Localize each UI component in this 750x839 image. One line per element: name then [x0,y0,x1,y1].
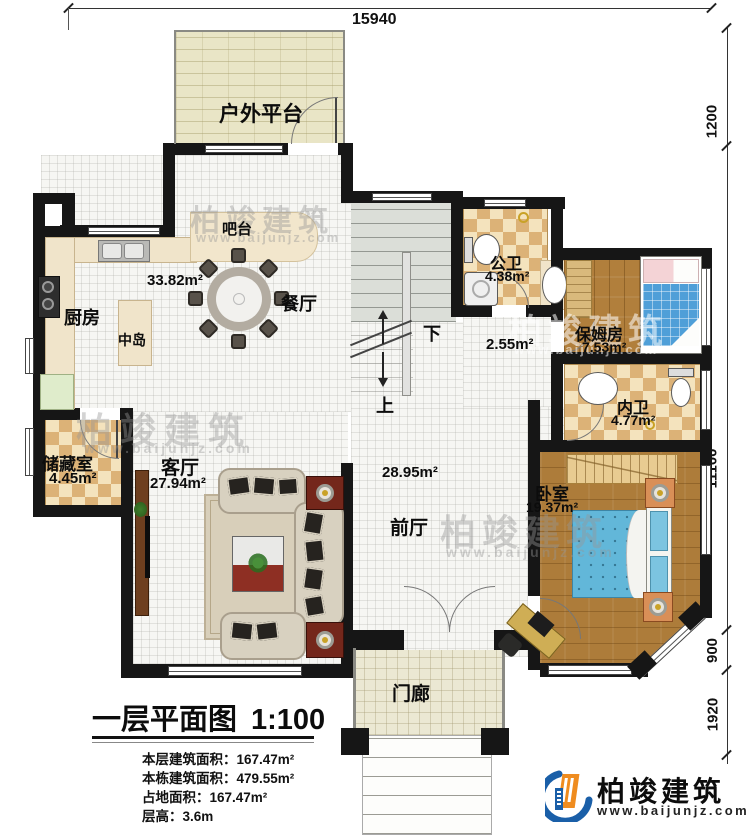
nanny-bed-fold [671,318,699,346]
bath1-top-window [484,199,526,207]
wall-foyer-bottom-left [348,630,404,650]
dining-chair [231,248,246,263]
stove-burner-2 [42,298,54,310]
sofa-top-cushion [277,477,298,495]
sofa-bottom-cushion [255,621,279,642]
kitchen-sink-basin-right [124,243,144,259]
stat-value: 479.55m² [237,771,295,786]
label-kitchen: 厨房 [64,304,100,330]
side-table-bottom-lamp-dot [322,637,328,643]
stair-arrow-line2 [382,352,384,378]
bar-top-window [205,145,283,153]
kitchen-sink-basin-left [102,243,122,259]
dim-line-top [68,8,712,9]
stat-value: 3.6m [183,809,214,824]
platform-wall-right [343,30,345,144]
sofa-right-cushion [303,567,325,591]
floor-plan: 15940 1200 11100 900 1920 [0,0,750,839]
sofa-right-cushion [303,595,325,618]
platform-door-opening [288,143,338,155]
label-hall-area: 2.55m² [486,336,534,353]
coffee-table-plant [247,552,269,574]
label-inner-bath-area: 4.77m² [611,412,655,428]
toilet-tank [464,237,473,263]
bath1-faucet [518,212,529,223]
sofa-top-cushion [252,476,275,496]
stat-label: 本栋建筑面积： [142,771,237,786]
stair-arrow-line [382,318,384,344]
wall-nanny-left-lower [551,352,563,452]
stat-row: 层高：3.6m [142,807,294,826]
platform-wall-top [174,30,344,32]
dim-right-1920: 1920 [705,685,722,745]
bedroom-pillow-1 [650,511,668,551]
kitchen-top-window [88,227,160,235]
wall-storage-bottom [33,505,133,517]
stats-list: 本层建筑面积：167.47m² 本栋建筑面积：479.55m² 占地面积：167… [142,750,294,826]
stat-label: 占地面积： [142,790,210,805]
storage-left-window [25,428,34,476]
bath1-sink [542,266,567,304]
plan-scale: 1:100 [251,704,325,737]
label-dining: 餐厅 [281,290,317,316]
label-bar: 吧台 [222,218,252,239]
label-nanny-room-area: 7.53m² [582,339,626,355]
porch-wall-left [353,648,356,732]
label-stair-down: 下 [423,320,441,346]
wall-step-vertical [163,143,175,237]
dim-line-right [727,26,728,764]
bedroom-bed-fold [626,510,648,598]
platform-wall-left [174,30,176,144]
label-public-bath-area: 4.38m² [485,268,529,284]
label-kitchen-dining-area: 33.82m² [147,272,203,289]
label-bedroom-area: 19.37m² [526,499,578,515]
tv [145,516,150,578]
title-block: 一层平面图 1:100 [92,696,325,738]
dining-chair [231,334,246,349]
brand-url: www.baijunjz.com [597,803,749,818]
wall-stair-right [451,203,463,317]
sofa-right-cushion [302,511,325,536]
label-outdoor-platform: 户外平台 [205,98,317,128]
porch-pier-right [481,728,509,755]
sofa-top-cushion [227,476,251,497]
living-bottom-window [168,666,302,676]
watermark-url: www.baijunjz.com [446,544,615,560]
stair-top-window [372,193,432,201]
stat-label: 层高： [142,809,183,824]
porch-pier-left [341,728,369,755]
dining-table-center [233,293,245,305]
brand-logo-icon [545,770,593,822]
bath2-right-window [701,370,711,430]
nanny-bed-pillow [643,259,699,283]
stat-row: 本层建筑面积：167.47m² [142,750,294,769]
brand-logo-glyph [545,770,593,822]
nightstand-bottom-lamp-dot [655,604,661,610]
dim-right-900: 900 [704,623,721,678]
watermark-url: www.baijunjz.com [196,230,340,245]
title-underline-2 [92,742,314,743]
nightstand-top-lamp-dot [657,490,663,496]
dining-chair [188,291,203,306]
bedroom-pillow-2 [650,556,668,596]
plan-title: 一层平面图 [92,696,237,738]
porch-wall-right [502,648,505,732]
cabinet-plant [134,502,147,517]
stat-value: 167.47m² [237,752,295,767]
dim-top-label: 15940 [352,11,397,29]
bedroom-bottom-window [548,665,632,675]
kitchen-left-window [25,338,34,374]
fridge [40,374,74,410]
label-island: 中岛 [118,330,146,350]
label-stair-up: 上 [376,392,394,418]
title-underline [92,736,314,739]
stove-burner-1 [42,281,54,293]
label-living-area: 27.94m² [150,475,206,492]
bath2-toilet-tank [668,368,694,377]
stair-arrow-up [378,310,388,319]
label-foyer-area: 28.95m² [382,464,438,481]
wall-pier-inner [44,204,62,226]
dim-right-1200: 1200 [704,92,721,152]
stat-row: 本栋建筑面积：479.55m² [142,769,294,788]
stat-label: 本层建筑面积： [142,752,237,767]
bath2-toilet-bowl [671,378,691,407]
label-foyer: 前厅 [390,513,428,540]
bath2-sink [578,372,618,405]
nanny-right-window [701,268,711,346]
stat-value: 167.47m² [210,790,268,805]
wall-bath2-bottom [540,440,712,452]
bedroom-right-window [701,465,711,555]
dim-leader [68,8,69,30]
sofa-right-cushion [304,539,325,563]
sofa-bottom-cushion [230,621,254,641]
stat-row: 占地面积：167.47m² [142,788,294,807]
stair-arrow-down [378,378,388,387]
entry-steps [362,735,492,835]
label-porch: 门廊 [392,679,430,706]
side-table-top-lamp-dot [322,490,328,496]
label-storage-area: 4.45m² [49,470,97,487]
